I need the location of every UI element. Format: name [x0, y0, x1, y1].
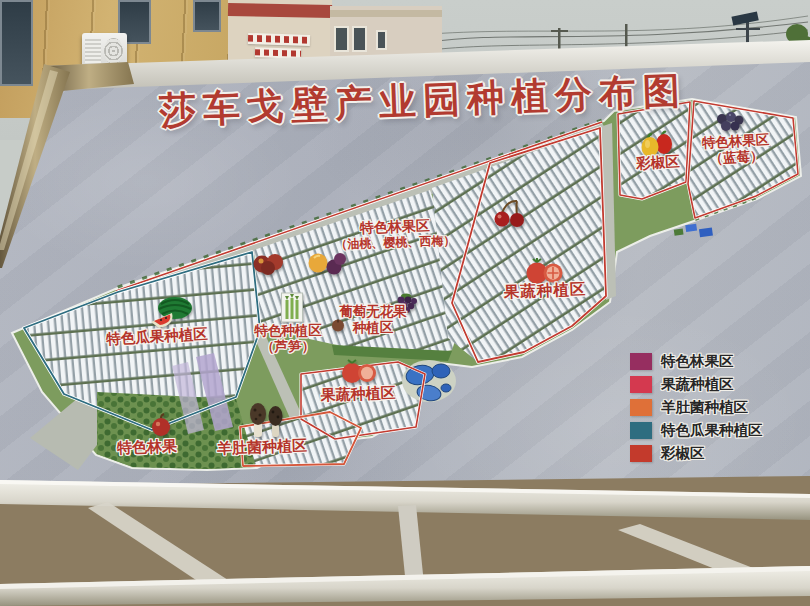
frame-left-rail — [0, 64, 70, 268]
frame-left-highlight — [0, 70, 58, 250]
billboard-frame — [0, 0, 810, 606]
frame-top-rail — [44, 40, 810, 90]
frame-post — [398, 505, 424, 586]
photo-of-planting-map-sign: 莎车戈壁产业园种植分布图 特色林果区（蓝莓） 彩椒区 特色林果区 （油桃、樱桃、… — [0, 0, 810, 606]
frame-brace-left — [88, 502, 228, 588]
